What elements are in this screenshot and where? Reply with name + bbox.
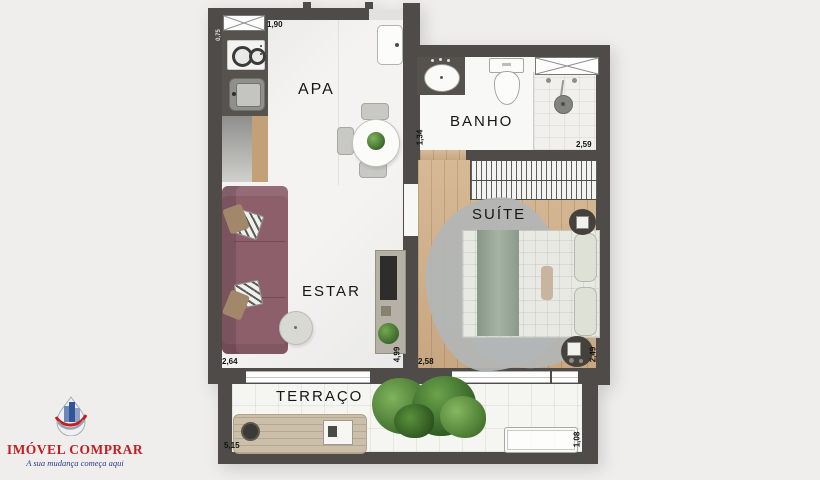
logo-brand-text: IMÓVEL COMPRAR xyxy=(0,442,150,458)
basin-icon xyxy=(424,64,460,92)
banho-door-opening xyxy=(420,150,466,160)
bed-runner xyxy=(477,230,519,336)
nightstand-icon xyxy=(569,209,596,235)
shower-head-icon xyxy=(554,95,573,114)
room-label-apa: APA xyxy=(298,81,335,99)
small-window xyxy=(552,371,578,383)
shower-head-center xyxy=(561,102,565,106)
plant-icon xyxy=(440,396,486,438)
kitchen-sink-icon xyxy=(229,78,265,111)
sink-faucet xyxy=(232,92,236,96)
dim-suite-bottom: 2,58 xyxy=(418,357,434,366)
side-table-icon xyxy=(279,311,313,345)
entry-threshold xyxy=(369,10,405,20)
room-label-terraco: TERRAÇO xyxy=(276,388,363,405)
shower-valve xyxy=(546,78,551,83)
toilet-flush xyxy=(502,63,511,66)
towel-niche-icon xyxy=(535,57,599,75)
basin-drain xyxy=(440,76,443,79)
basin-faucet xyxy=(447,59,450,62)
nightstand-item xyxy=(576,216,589,229)
stool-item xyxy=(579,359,583,363)
floor-grout-line xyxy=(338,20,339,185)
wardrobe-icon xyxy=(470,160,598,200)
logo-tagline: A sua mudança começa aqui xyxy=(5,458,145,468)
tray-icon xyxy=(323,420,353,445)
bowl-icon xyxy=(241,422,260,441)
bed-pillow xyxy=(574,287,597,336)
estar-sliding-door xyxy=(246,371,370,383)
bed-cushion xyxy=(541,266,553,300)
tray-item xyxy=(328,426,337,437)
side-table-center xyxy=(294,326,297,329)
stove-knob xyxy=(260,53,262,55)
wall-notch-right xyxy=(365,2,373,9)
stove-knob xyxy=(260,45,262,47)
room-label-suite: SUÍTE xyxy=(472,206,526,223)
suite-door-opening xyxy=(404,184,418,236)
dim-terraco-side: 1,08 xyxy=(573,425,582,455)
dim-estar-side: 4,99 xyxy=(393,340,402,370)
tv-rack-icon xyxy=(375,250,406,354)
dim-apa-top: 1,90 xyxy=(267,20,283,29)
kitchen-lower-cabinet xyxy=(222,116,252,182)
wall-left xyxy=(208,8,222,380)
room-label-estar: ESTAR xyxy=(302,283,361,300)
stove-icon xyxy=(227,40,265,70)
bed-pillow xyxy=(574,233,597,282)
suite-window xyxy=(452,371,550,383)
dining-chair xyxy=(361,103,389,120)
burner-icon xyxy=(249,48,266,65)
stool-item xyxy=(567,342,581,356)
dining-table-icon xyxy=(352,119,400,167)
kitchen-wood-counter xyxy=(252,116,268,182)
wall-notch-left xyxy=(303,2,311,9)
plant-icon xyxy=(394,404,434,438)
tv-icon xyxy=(380,256,397,300)
dim-terraco-bottom: 5,15 xyxy=(224,441,240,450)
wall-banho-top xyxy=(415,45,610,57)
basin-faucet xyxy=(439,58,442,61)
logo-mark xyxy=(53,396,89,436)
dim-kitchen-side: 0,75 xyxy=(216,20,222,50)
entry-door-icon xyxy=(377,25,403,65)
stove-knob xyxy=(260,61,262,63)
shower-valve xyxy=(572,78,577,83)
sofa-seam xyxy=(234,241,286,242)
dim-banho-bottom: 2,59 xyxy=(576,140,592,149)
stool-item xyxy=(569,358,574,363)
cabinet-x-icon xyxy=(223,15,265,31)
dim-banho-side: 1,34 xyxy=(416,123,425,153)
logo: IMÓVEL COMPRAR A sua mudança começa aqui xyxy=(0,390,180,475)
plant-icon xyxy=(367,132,385,150)
dim-estar-bottom: 2,64 xyxy=(222,357,238,366)
room-label-banho: BANHO xyxy=(450,113,513,130)
terrace-table-icon xyxy=(233,414,367,454)
sink-basin xyxy=(236,83,261,107)
planter-icon xyxy=(504,427,578,453)
door-handle xyxy=(395,43,399,47)
basin-faucet xyxy=(431,59,434,62)
dim-suite-side: 2,49 xyxy=(589,340,598,370)
rack-item xyxy=(381,306,391,316)
